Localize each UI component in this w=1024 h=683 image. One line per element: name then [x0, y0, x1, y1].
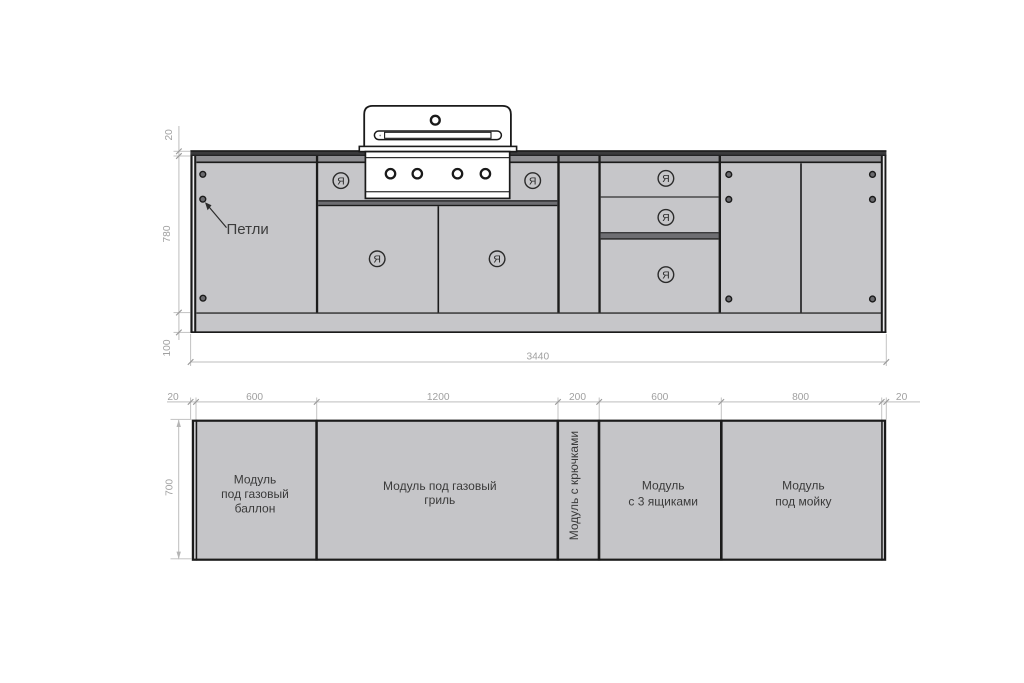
svg-text:Я: Я	[373, 254, 381, 266]
svg-text:20: 20	[896, 392, 908, 403]
svg-text:под газовый: под газовый	[221, 487, 289, 501]
svg-text:с 3 ящиками: с 3 ящиками	[628, 495, 698, 509]
svg-text:780: 780	[162, 225, 173, 242]
svg-text:Я: Я	[337, 175, 345, 187]
svg-text:Я: Я	[529, 175, 537, 187]
svg-text:20: 20	[164, 129, 175, 141]
svg-text:Я: Я	[662, 269, 670, 281]
svg-text:Модуль: Модуль	[642, 478, 685, 492]
svg-text:баллон: баллон	[235, 501, 276, 515]
svg-text:Я: Я	[662, 212, 670, 224]
svg-text:100: 100	[162, 339, 173, 356]
svg-text:Модуль: Модуль	[782, 478, 825, 492]
svg-text:Модуль под газовый: Модуль под газовый	[383, 479, 497, 493]
svg-text:Я: Я	[662, 173, 670, 185]
svg-text:3440: 3440	[526, 351, 549, 362]
svg-text:600: 600	[246, 392, 263, 403]
svg-text:Модуль с крючками: Модуль с крючками	[567, 431, 581, 540]
svg-text:под мойку: под мойку	[775, 495, 831, 509]
svg-text:20: 20	[167, 392, 179, 403]
svg-text:Я: Я	[493, 254, 501, 266]
svg-text:1200: 1200	[427, 392, 450, 403]
svg-text:700: 700	[164, 479, 175, 496]
svg-text:гриль: гриль	[424, 493, 455, 507]
svg-text:Модуль: Модуль	[234, 473, 277, 487]
svg-text:600: 600	[651, 392, 668, 403]
svg-text:200: 200	[569, 392, 586, 403]
svg-text:800: 800	[792, 392, 809, 403]
svg-text:Петли: Петли	[227, 221, 269, 238]
